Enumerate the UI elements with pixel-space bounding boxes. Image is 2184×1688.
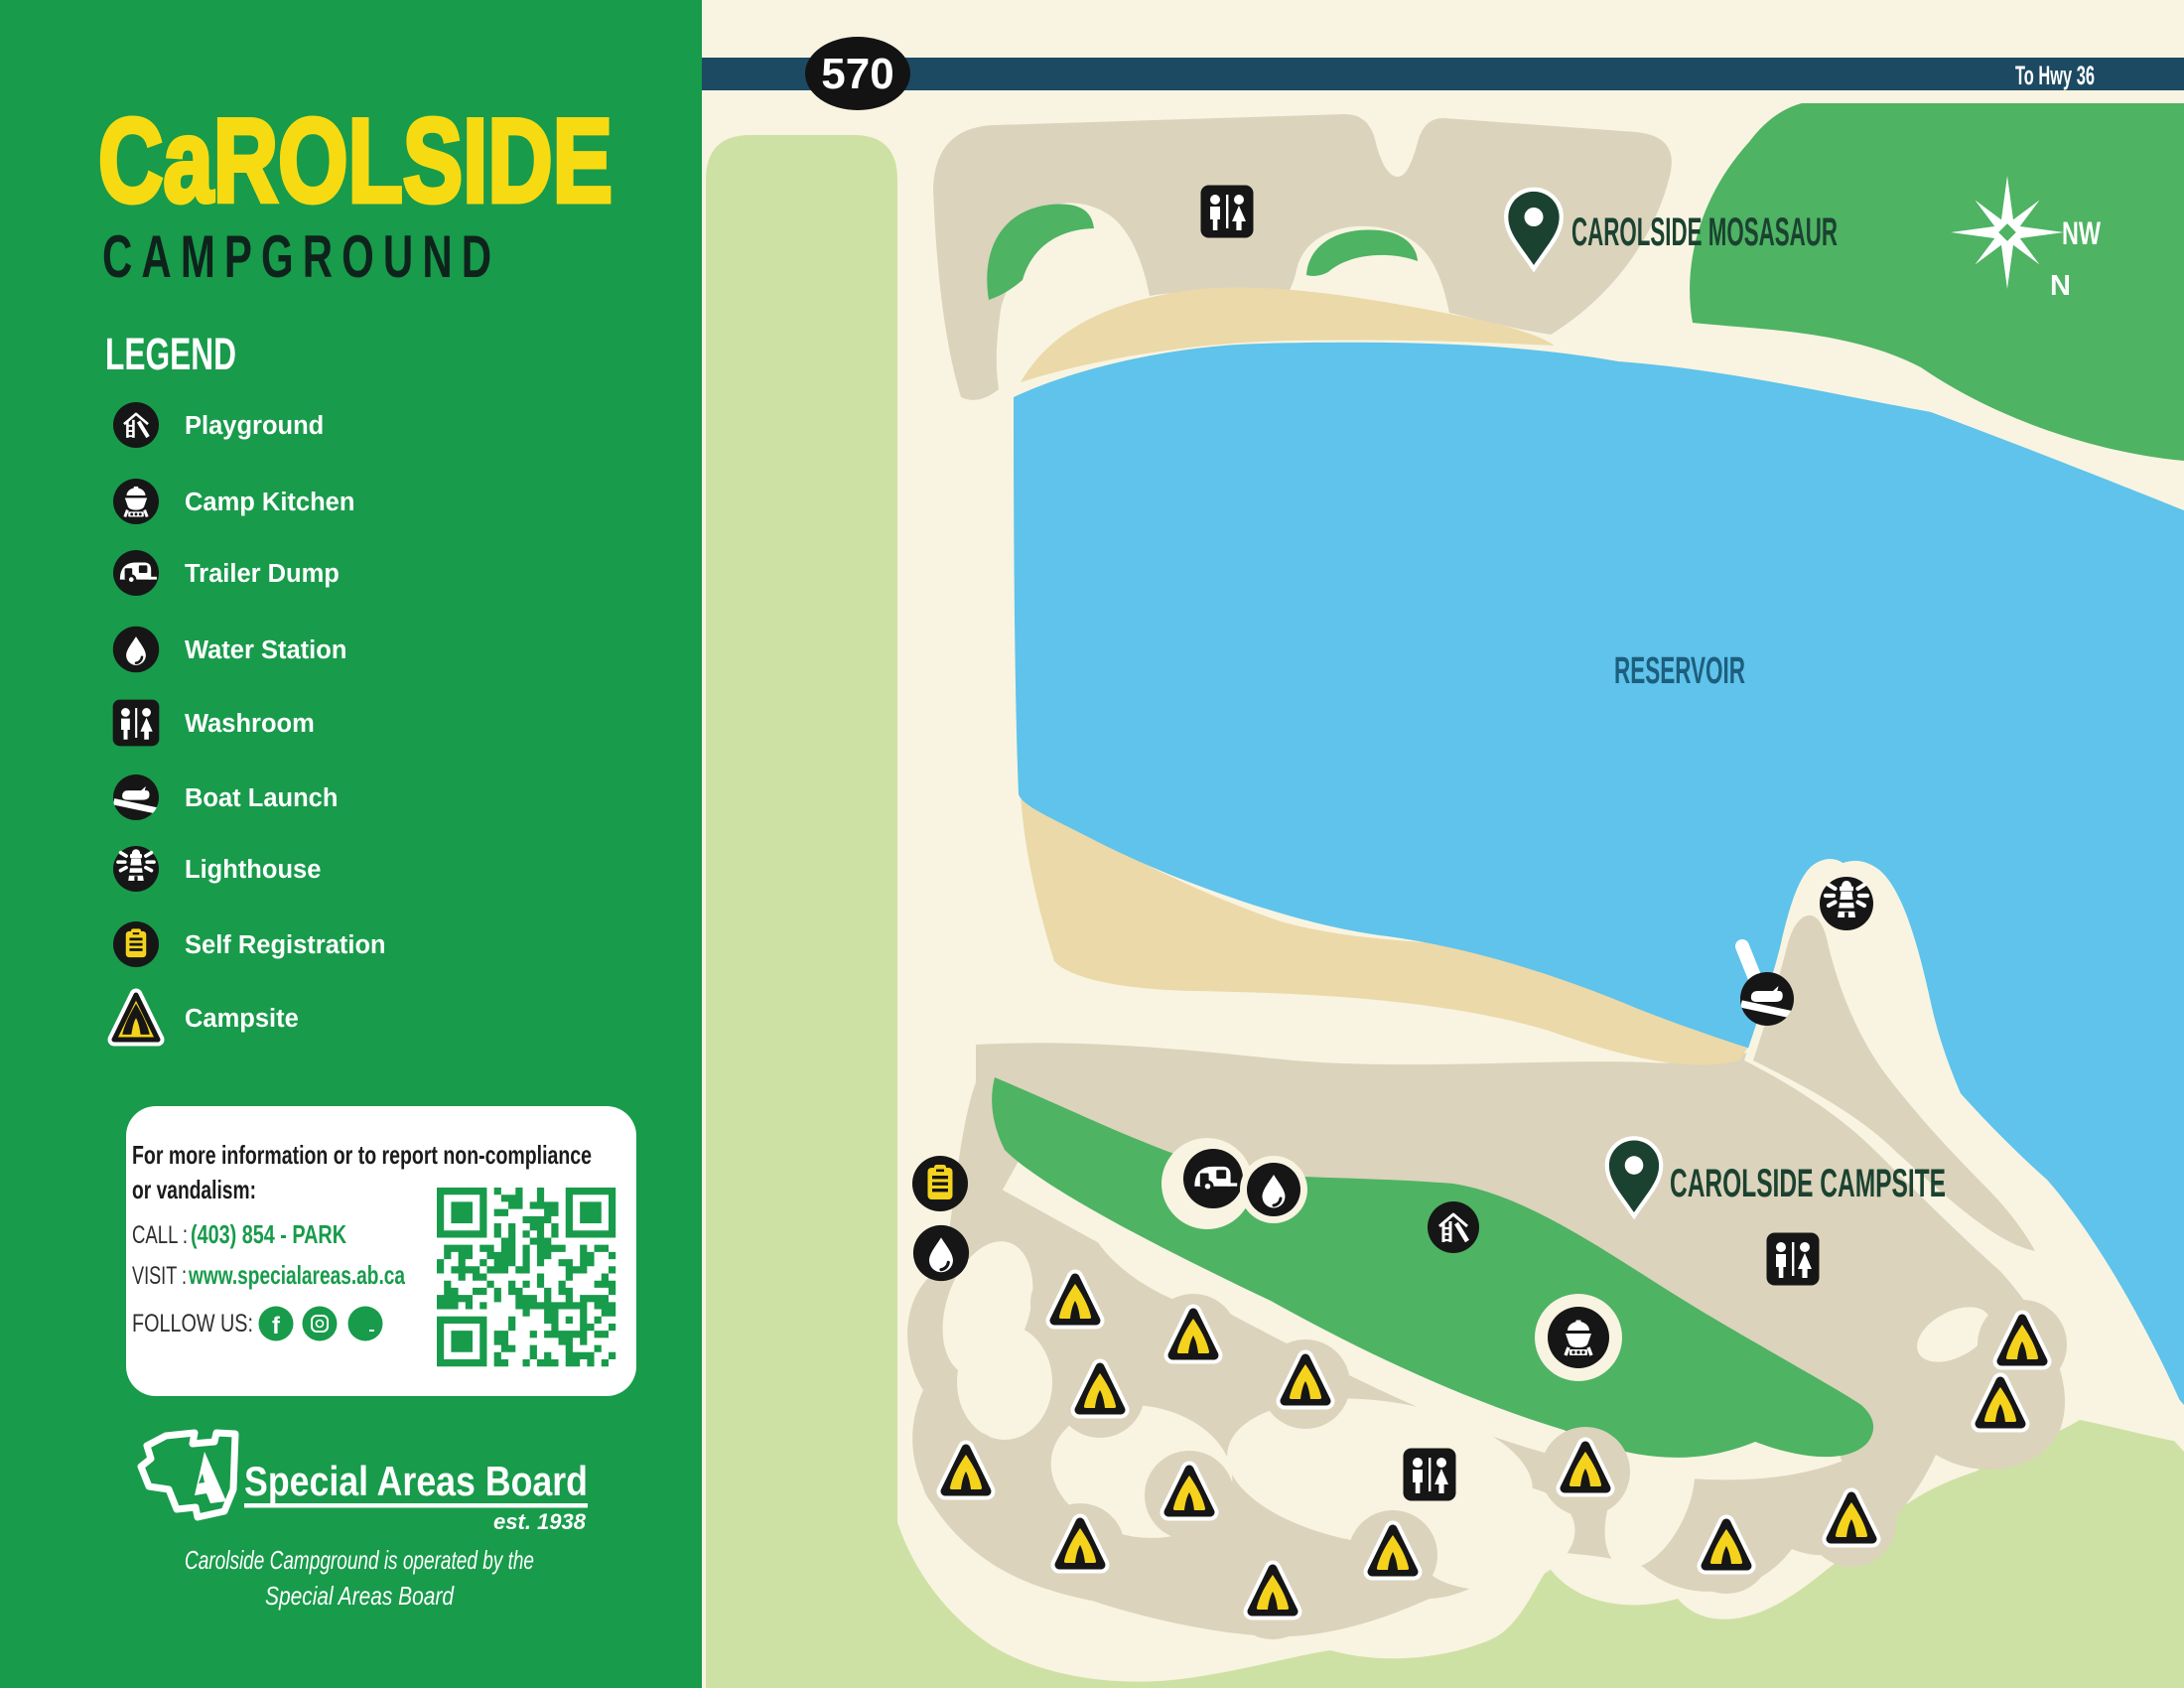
svg-text:CaROLSIDE: CaROLSIDE [98,94,613,227]
svg-text:VISIT :: VISIT : [132,1262,187,1290]
svg-text:570: 570 [821,50,893,98]
svg-text:Self Registration: Self Registration [185,931,386,959]
svg-text:LEGEND: LEGEND [105,329,236,379]
svg-text:Trailer Dump: Trailer Dump [185,560,340,588]
svg-text:To Hwy 36: To Hwy 36 [2015,61,2095,90]
svg-text:(403) 854 - PARK: (403) 854 - PARK [191,1219,346,1249]
svg-text:Camp Kitchen: Camp Kitchen [185,489,354,516]
svg-text:Campsite: Campsite [185,1005,299,1033]
svg-text:www.specialareas.ab.ca: www.specialareas.ab.ca [188,1260,405,1290]
svg-text:CAROLSIDE CAMPSITE: CAROLSIDE CAMPSITE [1670,1162,1946,1205]
svg-text:Carolside Campground is operat: Carolside Campground is operated by the [185,1545,534,1575]
svg-text:est. 1938: est. 1938 [493,1509,587,1534]
svg-text:RESERVOIR: RESERVOIR [1614,650,1745,692]
svg-text:CAROLSIDE MOSASAUR: CAROLSIDE MOSASAUR [1571,211,1838,254]
svg-text:N: N [2050,270,2071,302]
svg-text:FOLLOW US:: FOLLOW US: [132,1310,253,1337]
svg-text:Special Areas Board: Special Areas Board [244,1458,588,1504]
svg-text:Boat Launch: Boat Launch [185,784,338,812]
svg-text:or vandalism:: or vandalism: [132,1175,256,1204]
svg-text:CAMPGROUND: CAMPGROUND [102,223,500,290]
svg-text:For more information or to rep: For more information or to report non-co… [132,1140,592,1170]
svg-text:NW: NW [2062,215,2102,251]
svg-text:Washroom: Washroom [185,710,315,738]
svg-text:Special Areas Board: Special Areas Board [265,1581,455,1611]
svg-text:Lighthouse: Lighthouse [185,856,321,884]
svg-text:Playground: Playground [185,412,324,440]
svg-text:f: f [272,1313,281,1339]
svg-text:CALL :: CALL : [132,1221,188,1249]
svg-text:Water Station: Water Station [185,636,346,664]
